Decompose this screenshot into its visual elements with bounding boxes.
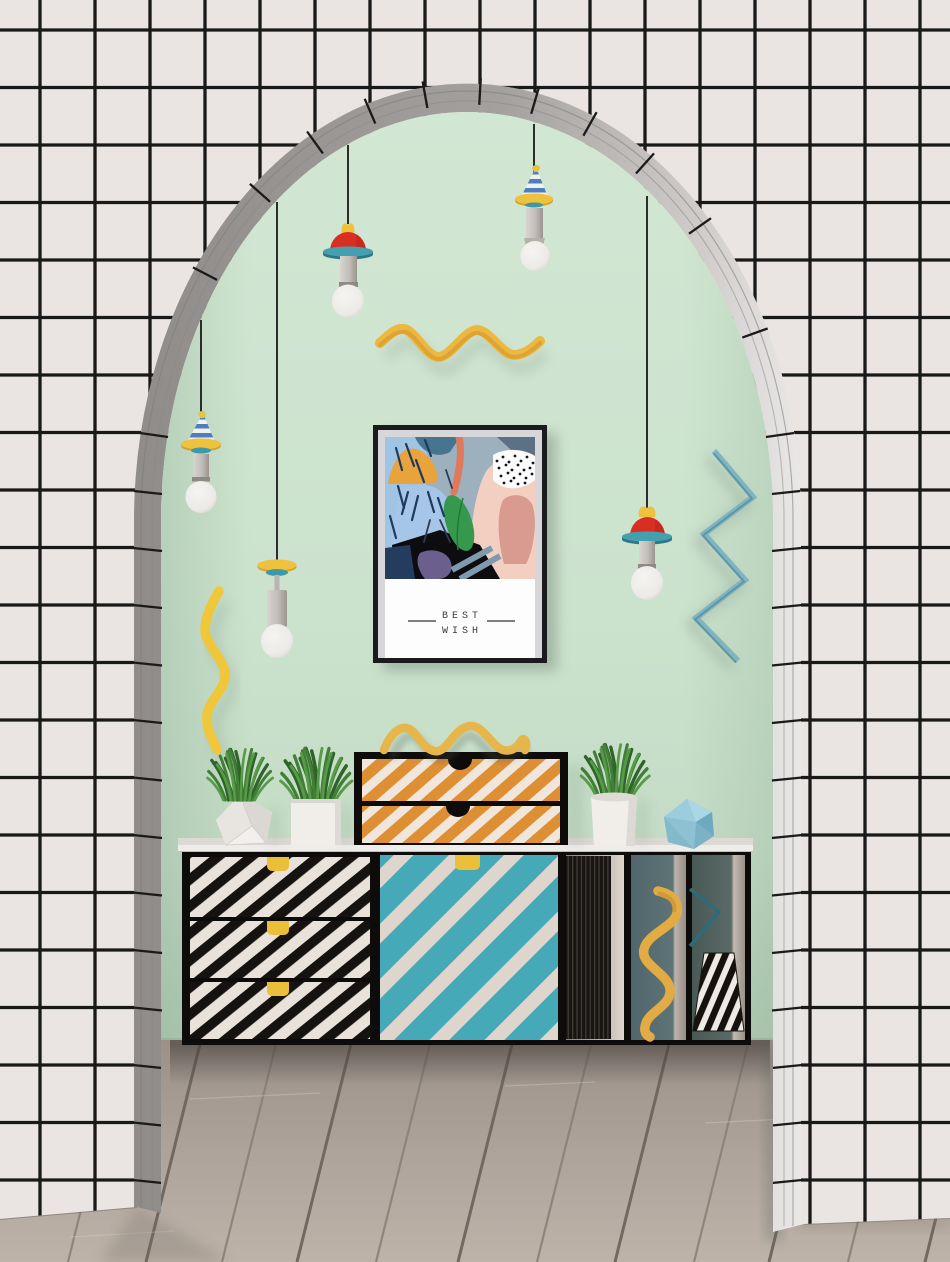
svg-text:BEST: BEST bbox=[442, 611, 482, 622]
svg-text:WISH: WISH bbox=[442, 626, 482, 637]
